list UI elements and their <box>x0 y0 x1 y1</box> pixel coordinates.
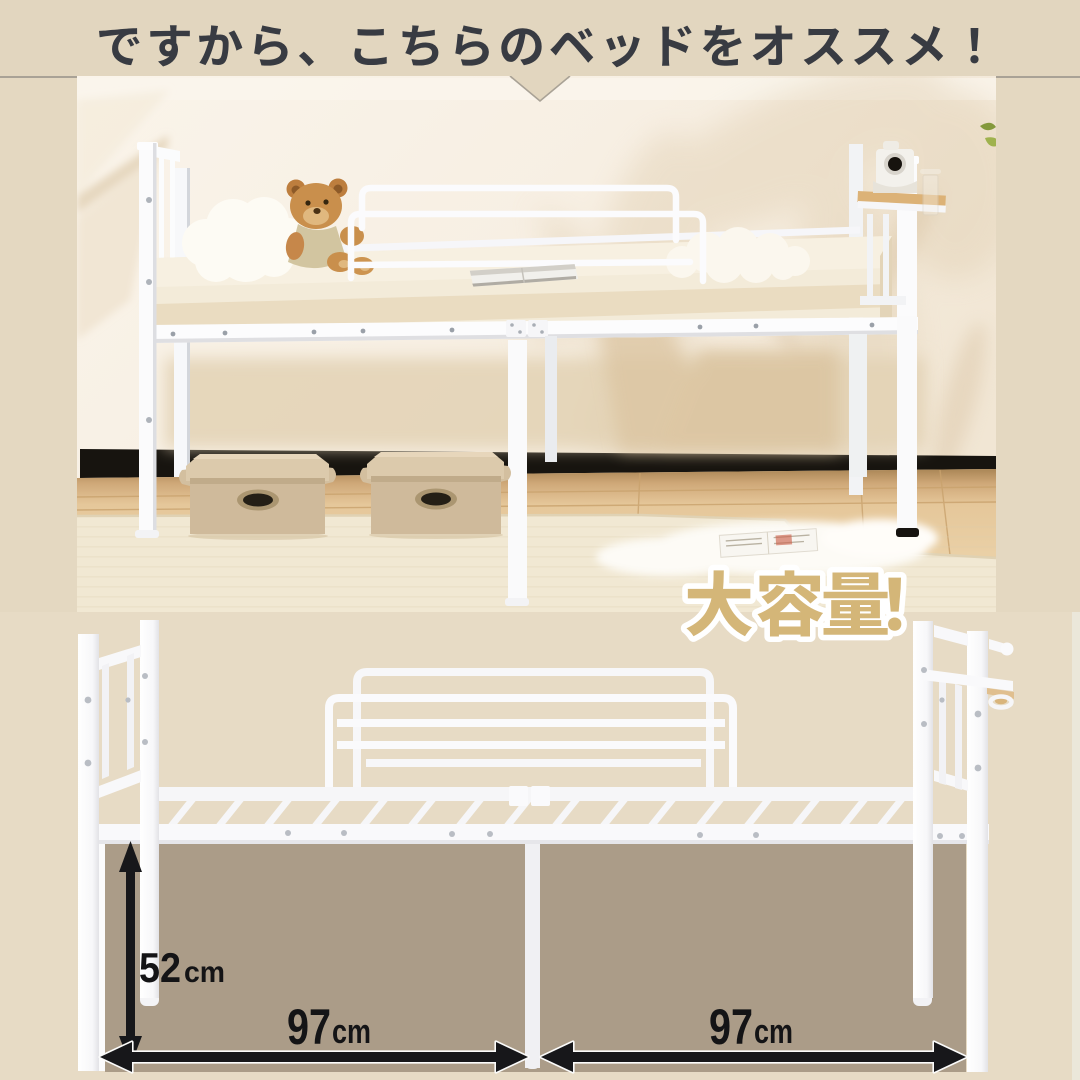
svg-text:97: 97 <box>709 999 753 1055</box>
svg-text:97: 97 <box>287 999 331 1055</box>
svg-text:cm: cm <box>332 1013 371 1051</box>
svg-text:cm: cm <box>184 956 225 989</box>
svg-text:cm: cm <box>754 1013 793 1051</box>
svg-text:52: 52 <box>139 944 181 991</box>
